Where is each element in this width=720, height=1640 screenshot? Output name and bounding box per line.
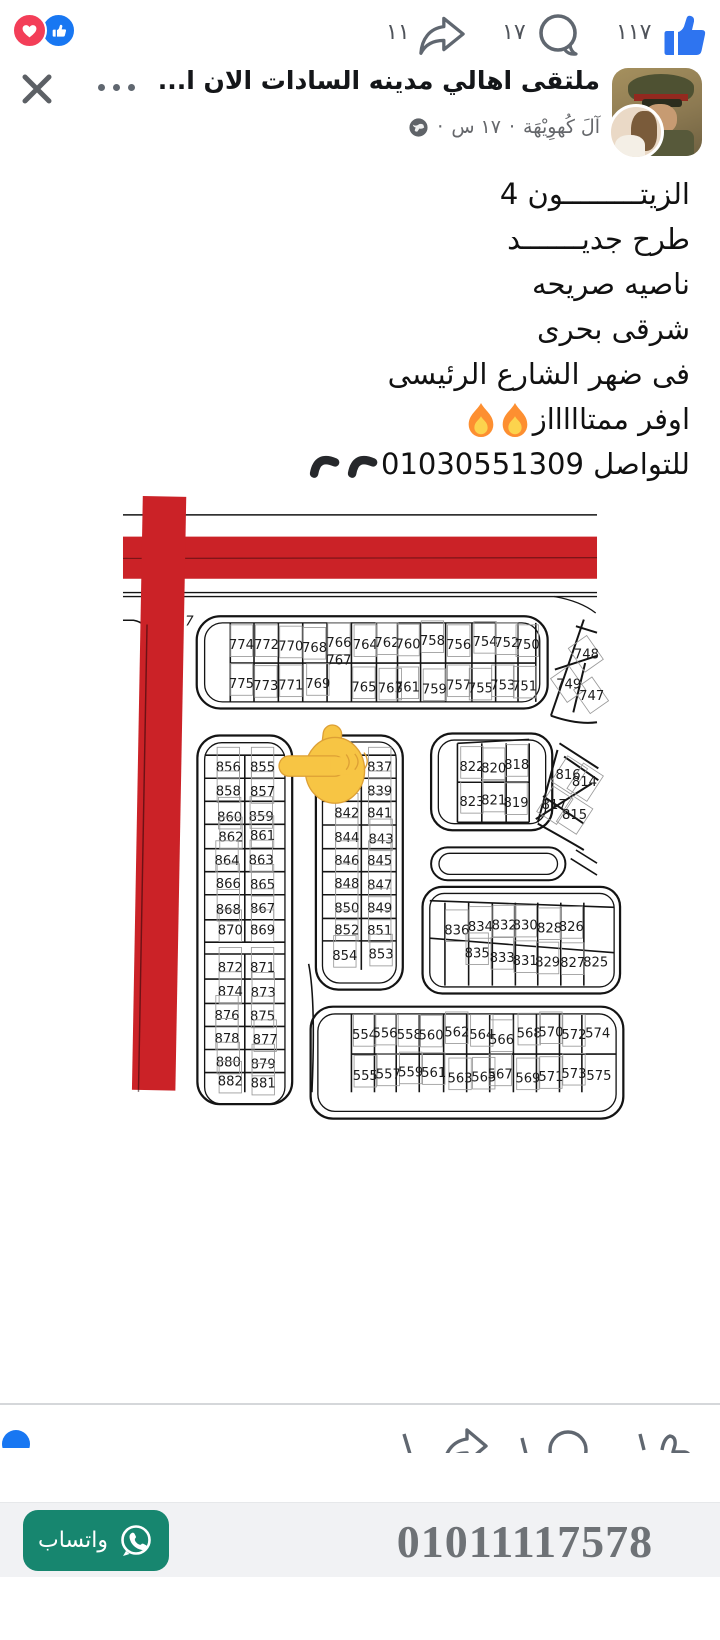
share-count[interactable]: ١١ bbox=[386, 20, 410, 45]
plot-label: 869 bbox=[250, 923, 275, 938]
plot-label: 857 bbox=[250, 785, 275, 800]
plot-label: 854 bbox=[332, 949, 357, 964]
byline-separator: · bbox=[509, 116, 515, 138]
plot-label: 839 bbox=[367, 784, 392, 799]
plot-label: 865 bbox=[250, 878, 275, 893]
plot-label: 841 bbox=[367, 807, 392, 822]
plot-label: 879 bbox=[251, 1058, 276, 1073]
plot-label: 825 bbox=[583, 956, 608, 971]
plot-label: 872 bbox=[218, 961, 243, 976]
close-icon[interactable] bbox=[20, 72, 54, 106]
comment-icon-partial bbox=[550, 1432, 586, 1453]
plot-label: 873 bbox=[251, 986, 276, 1001]
fire-icon bbox=[499, 402, 531, 438]
plot-map-image[interactable]: 7774772770768766767764762760758756754752… bbox=[0, 480, 720, 1405]
plot-label: 820 bbox=[481, 761, 506, 776]
plot-label: 870 bbox=[218, 923, 243, 938]
plot-label: 775 bbox=[229, 677, 254, 692]
plot-label: 747 bbox=[579, 689, 604, 704]
map-bottom-divider bbox=[0, 1403, 720, 1405]
whatsapp-button[interactable]: واتساب bbox=[23, 1510, 169, 1571]
plot-label: 758 bbox=[420, 634, 445, 649]
plot-label: 771 bbox=[278, 678, 303, 693]
plot-label: 770 bbox=[278, 640, 303, 655]
post-line: طرح جديـــــــد bbox=[30, 217, 690, 262]
post-line: ناصيه صريحه bbox=[30, 262, 690, 307]
plot-label: 756 bbox=[446, 638, 471, 653]
plot-label: 855 bbox=[250, 761, 275, 776]
plot-label: 847 bbox=[367, 879, 392, 894]
share-icon[interactable] bbox=[418, 12, 466, 56]
byline: آلَ كُهوِيْهَة · ١٧ س · bbox=[408, 116, 600, 138]
plot-label: 748 bbox=[574, 647, 599, 662]
plot-label: 861 bbox=[250, 829, 275, 844]
plot-label: 837 bbox=[367, 761, 392, 776]
post-line: الزيتـــــــــون 4 bbox=[30, 172, 690, 217]
page-title[interactable]: ملتقى اهالي مدينه السادات الان ا... bbox=[160, 66, 600, 95]
plot-label: 575 bbox=[586, 1069, 611, 1084]
post-text: الزيتـــــــــون 4 طرح جديـــــــد ناصيه… bbox=[30, 172, 690, 487]
plot-label: 769 bbox=[305, 677, 330, 692]
contact-bar: واتساب 01011117578 bbox=[0, 1502, 720, 1577]
avatar[interactable] bbox=[612, 68, 702, 156]
plot-label: 815 bbox=[562, 808, 587, 823]
plot-label: 849 bbox=[367, 902, 392, 917]
plot-label: 829 bbox=[535, 956, 560, 971]
comment-icon[interactable] bbox=[536, 12, 582, 58]
plot-label: 556 bbox=[372, 1027, 397, 1042]
avatar-secondary-photo bbox=[608, 104, 664, 160]
plot-label: 826 bbox=[559, 920, 584, 935]
author-name[interactable]: آلَ كُهوِيْهَة bbox=[523, 116, 600, 138]
plot-label: 864 bbox=[214, 854, 239, 869]
plot-label: 866 bbox=[216, 877, 241, 892]
plot-label: 819 bbox=[503, 796, 528, 811]
plot-label: 856 bbox=[216, 761, 241, 776]
plot-label: 560 bbox=[419, 1029, 444, 1044]
love-reaction-badge[interactable] bbox=[12, 13, 47, 48]
like-icon-partial bbox=[662, 1436, 689, 1453]
plot-label: 850 bbox=[334, 902, 359, 917]
plot-label: 772 bbox=[254, 638, 279, 653]
plot-label: 559 bbox=[398, 1065, 423, 1080]
plot-label: 848 bbox=[334, 877, 359, 892]
like-count[interactable]: ١١٧ bbox=[616, 20, 651, 45]
plot-label: 871 bbox=[250, 961, 275, 976]
plot-label: 555 bbox=[353, 1069, 378, 1084]
share-icon-partial bbox=[444, 1430, 486, 1453]
plot-label: 830 bbox=[513, 919, 538, 934]
plot-label: 878 bbox=[214, 1032, 239, 1047]
byline-separator2: · bbox=[437, 116, 443, 138]
whatsapp-button-label: واتساب bbox=[38, 1528, 108, 1553]
plot-label: 881 bbox=[251, 1077, 276, 1092]
plot-label: 562 bbox=[444, 1025, 469, 1040]
plot-label: 765 bbox=[351, 680, 376, 695]
plot-label: 874 bbox=[218, 985, 243, 1000]
map-red-roads bbox=[123, 496, 597, 1093]
plot-label: 882 bbox=[218, 1075, 243, 1090]
plot-label: 767 bbox=[326, 653, 351, 668]
plot-label: 571 bbox=[538, 1070, 563, 1085]
plot-label: 859 bbox=[249, 810, 274, 825]
plot-label: 750 bbox=[515, 638, 540, 653]
plot-label: 843 bbox=[369, 832, 394, 847]
plot-label: 768 bbox=[302, 641, 327, 656]
phone-receiver-icon bbox=[343, 448, 379, 482]
plot-label: 766 bbox=[326, 636, 351, 651]
plot-label: 851 bbox=[367, 924, 392, 939]
text-fragment bbox=[404, 1434, 410, 1453]
post-viewer-screen: ١١ ١٧ ١١٧ ملتقى اهالي مدينه السادات الان… bbox=[0, 0, 720, 1640]
plot-label: 566 bbox=[489, 1033, 514, 1048]
thumb-icon bbox=[51, 23, 67, 39]
plot-label: 749 bbox=[556, 678, 581, 693]
red-road-vertical bbox=[132, 496, 186, 1093]
plot-label: 862 bbox=[218, 830, 243, 845]
reaction-badge-partial bbox=[2, 1430, 32, 1448]
plot-label: 561 bbox=[421, 1066, 446, 1081]
post-line: شرقى بحرى bbox=[30, 307, 690, 352]
fire-icon bbox=[465, 402, 497, 438]
plot-label: 7 bbox=[185, 614, 194, 629]
plot-label: 761 bbox=[395, 680, 420, 695]
plot-label: 853 bbox=[369, 948, 394, 963]
plot-label: 814 bbox=[572, 775, 597, 790]
like-icon[interactable] bbox=[660, 11, 710, 59]
plot-label: 831 bbox=[513, 954, 538, 969]
plot-label: 572 bbox=[561, 1028, 586, 1043]
plot-label: 842 bbox=[334, 807, 359, 822]
whatsapp-icon bbox=[118, 1523, 154, 1559]
post-line: اوفر ممتاااااز bbox=[30, 397, 690, 442]
plot-label: 876 bbox=[214, 1009, 239, 1024]
globe-privacy-icon bbox=[408, 117, 429, 138]
plot-label: 835 bbox=[465, 946, 490, 961]
plot-label: 759 bbox=[422, 682, 447, 697]
plot-label: 846 bbox=[334, 854, 359, 869]
phone-receiver-icon bbox=[305, 448, 341, 482]
post-line: فى ضهر الشارع الرئيسى bbox=[30, 352, 690, 397]
plot-label: 755 bbox=[468, 682, 493, 697]
plot-label: 844 bbox=[334, 831, 359, 846]
plot-label: 863 bbox=[249, 853, 274, 868]
plot-label: 773 bbox=[253, 679, 278, 694]
contact-phone-number[interactable]: 01011117578 bbox=[355, 1515, 695, 1568]
plot-label: 821 bbox=[481, 794, 506, 809]
plot-label: 774 bbox=[229, 638, 254, 653]
heart-icon bbox=[21, 23, 38, 39]
plot-label: 574 bbox=[585, 1027, 610, 1042]
plot-label: 827 bbox=[560, 956, 585, 971]
plot-label: 569 bbox=[515, 1071, 540, 1086]
plot-label: 570 bbox=[538, 1025, 563, 1040]
plot-label: 845 bbox=[367, 854, 392, 869]
plot-label: 567 bbox=[488, 1067, 513, 1082]
more-options-icon[interactable] bbox=[98, 84, 135, 91]
plot-label: 860 bbox=[217, 811, 242, 826]
plot-label: 818 bbox=[504, 758, 529, 773]
plot-label: 573 bbox=[561, 1067, 586, 1082]
comment-count[interactable]: ١٧ bbox=[502, 20, 526, 45]
plot-label: 563 bbox=[448, 1071, 473, 1086]
plot-label: 557 bbox=[376, 1067, 401, 1082]
partial-action-bar bbox=[0, 1422, 720, 1453]
post-time: ١٧ س bbox=[451, 116, 501, 138]
plot-label: 751 bbox=[512, 680, 537, 695]
plot-label: 760 bbox=[395, 638, 420, 653]
plot-label: 833 bbox=[490, 951, 515, 966]
